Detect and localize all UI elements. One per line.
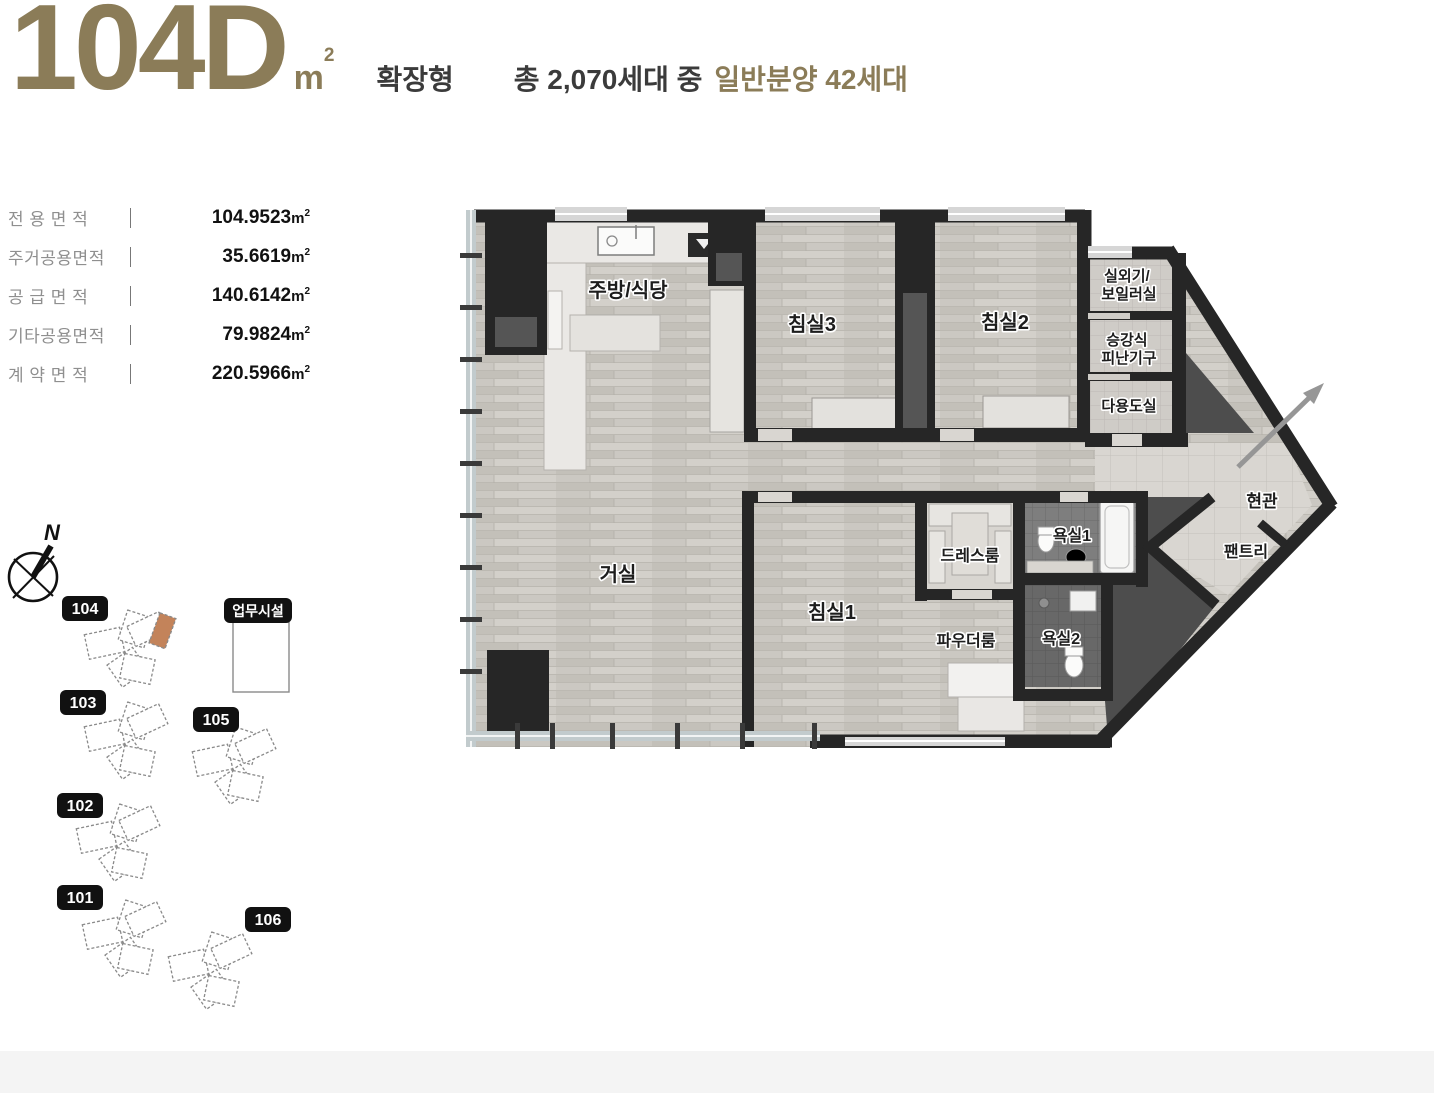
svg-text:105: 105 xyxy=(203,712,230,729)
unit-area-symbol: m2 xyxy=(294,45,335,98)
unit-type-title: 104D xyxy=(10,0,286,108)
outdoor-unit-room-floor xyxy=(1088,259,1172,311)
building-badge-101: 101 xyxy=(57,885,103,910)
area-row-residential-common: 주거공용면적 35.6619m2 xyxy=(8,237,310,276)
building-badge-104: 104 xyxy=(62,596,108,621)
sink xyxy=(1070,591,1096,611)
room-label-bedroom3: 침실3 xyxy=(788,313,836,336)
room-label-bedroom2: 침실2 xyxy=(981,311,1029,334)
svg-text:101: 101 xyxy=(67,890,94,907)
building-106 xyxy=(168,932,252,1009)
area-row-exclusive: 전 용 면 적 104.9523m2 xyxy=(8,198,310,237)
site-plan: N 104 업무시설 103 105 102 101 106 xyxy=(0,510,340,1030)
area-value: 104.9523m2 xyxy=(141,207,310,229)
office-facility-footprint xyxy=(233,622,289,692)
area-value: 35.6619m2 xyxy=(141,246,310,268)
building-badge-103: 103 xyxy=(60,690,106,715)
divider xyxy=(130,286,131,306)
area-label: 공 급 면 적 xyxy=(8,283,126,308)
area-label: 주거공용면적 xyxy=(8,244,126,269)
area-value: 220.5966m2 xyxy=(141,363,310,385)
facility-badge: 업무시설 xyxy=(224,598,292,623)
room-label-entrance: 현관 xyxy=(1246,492,1278,511)
total-households-text: 총 2,070세대 중 xyxy=(514,58,703,98)
svg-text:102: 102 xyxy=(67,798,94,815)
building-101 xyxy=(82,900,166,977)
area-label: 계 약 면 적 xyxy=(8,361,126,386)
powder-cabinet xyxy=(948,663,1014,697)
room-label-dressroom: 드레스룸 xyxy=(941,547,1000,565)
room-label-kitchen: 주방/식당 xyxy=(588,279,668,302)
divider xyxy=(130,208,131,228)
building-105 xyxy=(192,727,276,804)
area-value: 140.6142m2 xyxy=(141,285,310,307)
area-value: 79.9824m2 xyxy=(141,324,310,346)
svg-text:103: 103 xyxy=(70,695,97,712)
footer-band xyxy=(0,1051,1434,1093)
room-label-bedroom1: 침실1 xyxy=(808,601,856,624)
shower-drain xyxy=(1039,598,1049,608)
bedroom2-closet xyxy=(983,396,1069,428)
compass-icon: N xyxy=(9,520,61,601)
area-label: 전 용 면 적 xyxy=(8,205,126,230)
area-row-contract: 계 약 면 적 220.5966m2 xyxy=(8,354,310,393)
area-label: 기타공용면적 xyxy=(8,322,126,347)
room-label-pantry: 팬트리 xyxy=(1224,543,1268,561)
divider xyxy=(130,325,131,345)
floor-plan: 주방/식당 침실3 침실2 실외기/ 보일러실 승강식 피난기구 다용도실 거실… xyxy=(460,195,1340,755)
powder-cabinet-2 xyxy=(958,697,1024,731)
compass-north-label: N xyxy=(44,520,61,545)
area-table: 전 용 면 적 104.9523m2 주거공용면적 35.6619m2 공 급 … xyxy=(8,198,310,393)
dressroom-interior xyxy=(925,501,1015,590)
room-label-powder: 파우더룸 xyxy=(937,632,996,650)
toilet xyxy=(1065,653,1083,677)
page-header: 104D m2 확장형 총 2,070세대 중 일반분양 42세대 xyxy=(10,0,908,108)
divider xyxy=(130,247,131,267)
area-row-other-common: 기타공용면적 79.9824m2 xyxy=(8,315,310,354)
bedroom3-closet xyxy=(812,398,898,430)
room-label-living: 거실 xyxy=(600,563,637,586)
room-label-utility: 다용도실 xyxy=(1101,398,1156,415)
room-label-bath2: 욕실2 xyxy=(1042,630,1080,648)
general-sale-text: 일반분양 42세대 xyxy=(714,58,908,98)
area-row-supply: 공 급 면 적 140.6142m2 xyxy=(8,276,310,315)
svg-text:업무시설: 업무시설 xyxy=(232,603,284,619)
building-badge-102: 102 xyxy=(57,793,103,818)
divider xyxy=(130,364,131,384)
building-badge-106: 106 xyxy=(245,907,291,932)
expansion-type-label: 확장형 xyxy=(376,58,453,98)
svg-text:104: 104 xyxy=(72,601,99,618)
building-104 xyxy=(84,610,176,687)
hall-storage xyxy=(710,290,744,432)
building-badge-105: 105 xyxy=(193,707,239,732)
room-label-bath1: 욕실1 xyxy=(1053,527,1091,545)
svg-text:106: 106 xyxy=(255,912,282,929)
